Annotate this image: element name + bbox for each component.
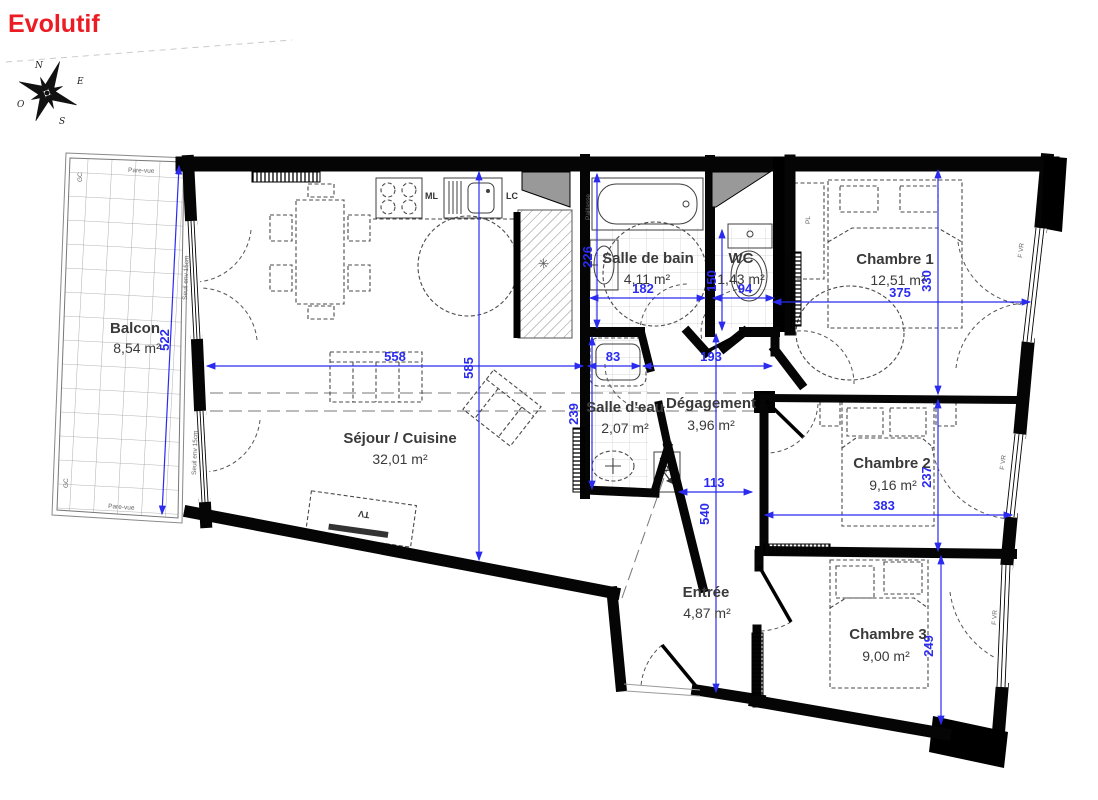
- room-name-sdb: Salle de bain: [602, 250, 694, 267]
- compass-west-label: O: [17, 100, 25, 110]
- fvr-bedroom1-label: F VR: [1017, 242, 1026, 258]
- dim-sde-width: 83: [606, 349, 620, 364]
- room-name-wc: WC: [729, 250, 754, 267]
- dim-sde-depth: 239: [566, 403, 581, 425]
- dim-ch2-width: 383: [873, 498, 895, 513]
- sofa: [330, 352, 422, 402]
- room-area-sde: 2,07 m²: [601, 420, 649, 436]
- page-title: Evolutif: [8, 10, 100, 38]
- dining-table: [270, 184, 370, 319]
- bedroom2-window: F VR: [999, 434, 1023, 517]
- room-area-ch3: 9,00 m²: [862, 648, 910, 664]
- room-area-ch1: 12,51 m²: [870, 272, 926, 288]
- compass-rose-icon: N E O S: [8, 50, 89, 133]
- bedroom1-window: F VR: [1017, 228, 1044, 342]
- dim-degagement-width: 193: [700, 349, 722, 364]
- radiator-sejour: [252, 172, 320, 182]
- fvr-bedroom3-label: F VR: [991, 610, 999, 626]
- dim-entree-width: 113: [704, 475, 725, 490]
- compass-north-label: N: [34, 61, 44, 71]
- paillasse-label: Paillasse: [585, 194, 592, 220]
- property-boundary-line: [6, 40, 292, 62]
- room-name-degagement: Dégagement: [666, 395, 756, 412]
- dim-entree-depth: 540: [697, 503, 712, 525]
- room-name-sde: Salle d'eau: [586, 399, 664, 416]
- armchair: [463, 370, 541, 446]
- radiator-bedroom1: [791, 252, 801, 326]
- balcony-door-lower: Seuil env 15cm: [191, 411, 208, 502]
- room-area-entree: 4,87 m²: [683, 605, 731, 621]
- compass-south-label: S: [59, 117, 65, 127]
- radiator-entry: [752, 633, 763, 695]
- room-area-wc: 1,43 m²: [717, 271, 765, 287]
- turning-circle-kitchen: [418, 216, 518, 316]
- room-name-balcon: Balcon: [110, 320, 160, 337]
- lc-label: LC: [506, 191, 518, 201]
- room-area-sdb: 4,11 m²: [624, 271, 671, 287]
- kitchen-furniture: ML LC: [373, 178, 518, 316]
- ml-label: ML: [425, 191, 438, 201]
- compass-east-label: E: [76, 77, 84, 87]
- cooktop-icon: [376, 178, 422, 218]
- dim-sdb-depth: 226: [580, 246, 595, 268]
- pare-vue-top-label: Pare-vue: [128, 167, 155, 175]
- radiator-shower-room: [573, 428, 584, 492]
- fvr-bedroom2-label: F VR: [999, 454, 1008, 470]
- pl-label: PL: [805, 216, 812, 224]
- room-area-degagement: 3,96 m²: [687, 417, 735, 433]
- room-name-ch1: Chambre 1: [856, 251, 934, 268]
- balcony-door-upper: Seuil env 15cm: [182, 221, 200, 339]
- sink-icon: [444, 178, 502, 218]
- room-area-sejour: 32,01 m²: [372, 451, 428, 467]
- room-name-ch2: Chambre 2: [853, 455, 931, 472]
- room-name-ch3: Chambre 3: [849, 626, 927, 643]
- floor-plan-drawing: Evolutif N E O S Pare-vue Pare-vue GC GC: [0, 0, 1098, 800]
- bedroom3-furniture: [830, 560, 928, 688]
- dim-sejour-height: 585: [461, 357, 476, 379]
- radiator-bedroom3: [764, 544, 830, 554]
- room-area-ch2: 9,16 m²: [869, 477, 917, 493]
- room-area-balcon: 8,54 m²: [113, 340, 161, 356]
- shaft-star-icon: ✳: [538, 256, 549, 271]
- gc-top-label: GC: [77, 172, 84, 182]
- room-name-sejour: Séjour / Cuisine: [343, 430, 456, 447]
- floor-plan-page: Evolutif N E O S Pare-vue Pare-vue GC GC: [0, 0, 1098, 800]
- room-name-entree: Entrée: [683, 584, 730, 601]
- dim-sejour-width: 558: [384, 349, 406, 364]
- bedroom3-window: F VR: [991, 565, 1010, 687]
- gc-bottom-label: GC: [63, 478, 70, 488]
- tv-label: TV: [358, 509, 371, 521]
